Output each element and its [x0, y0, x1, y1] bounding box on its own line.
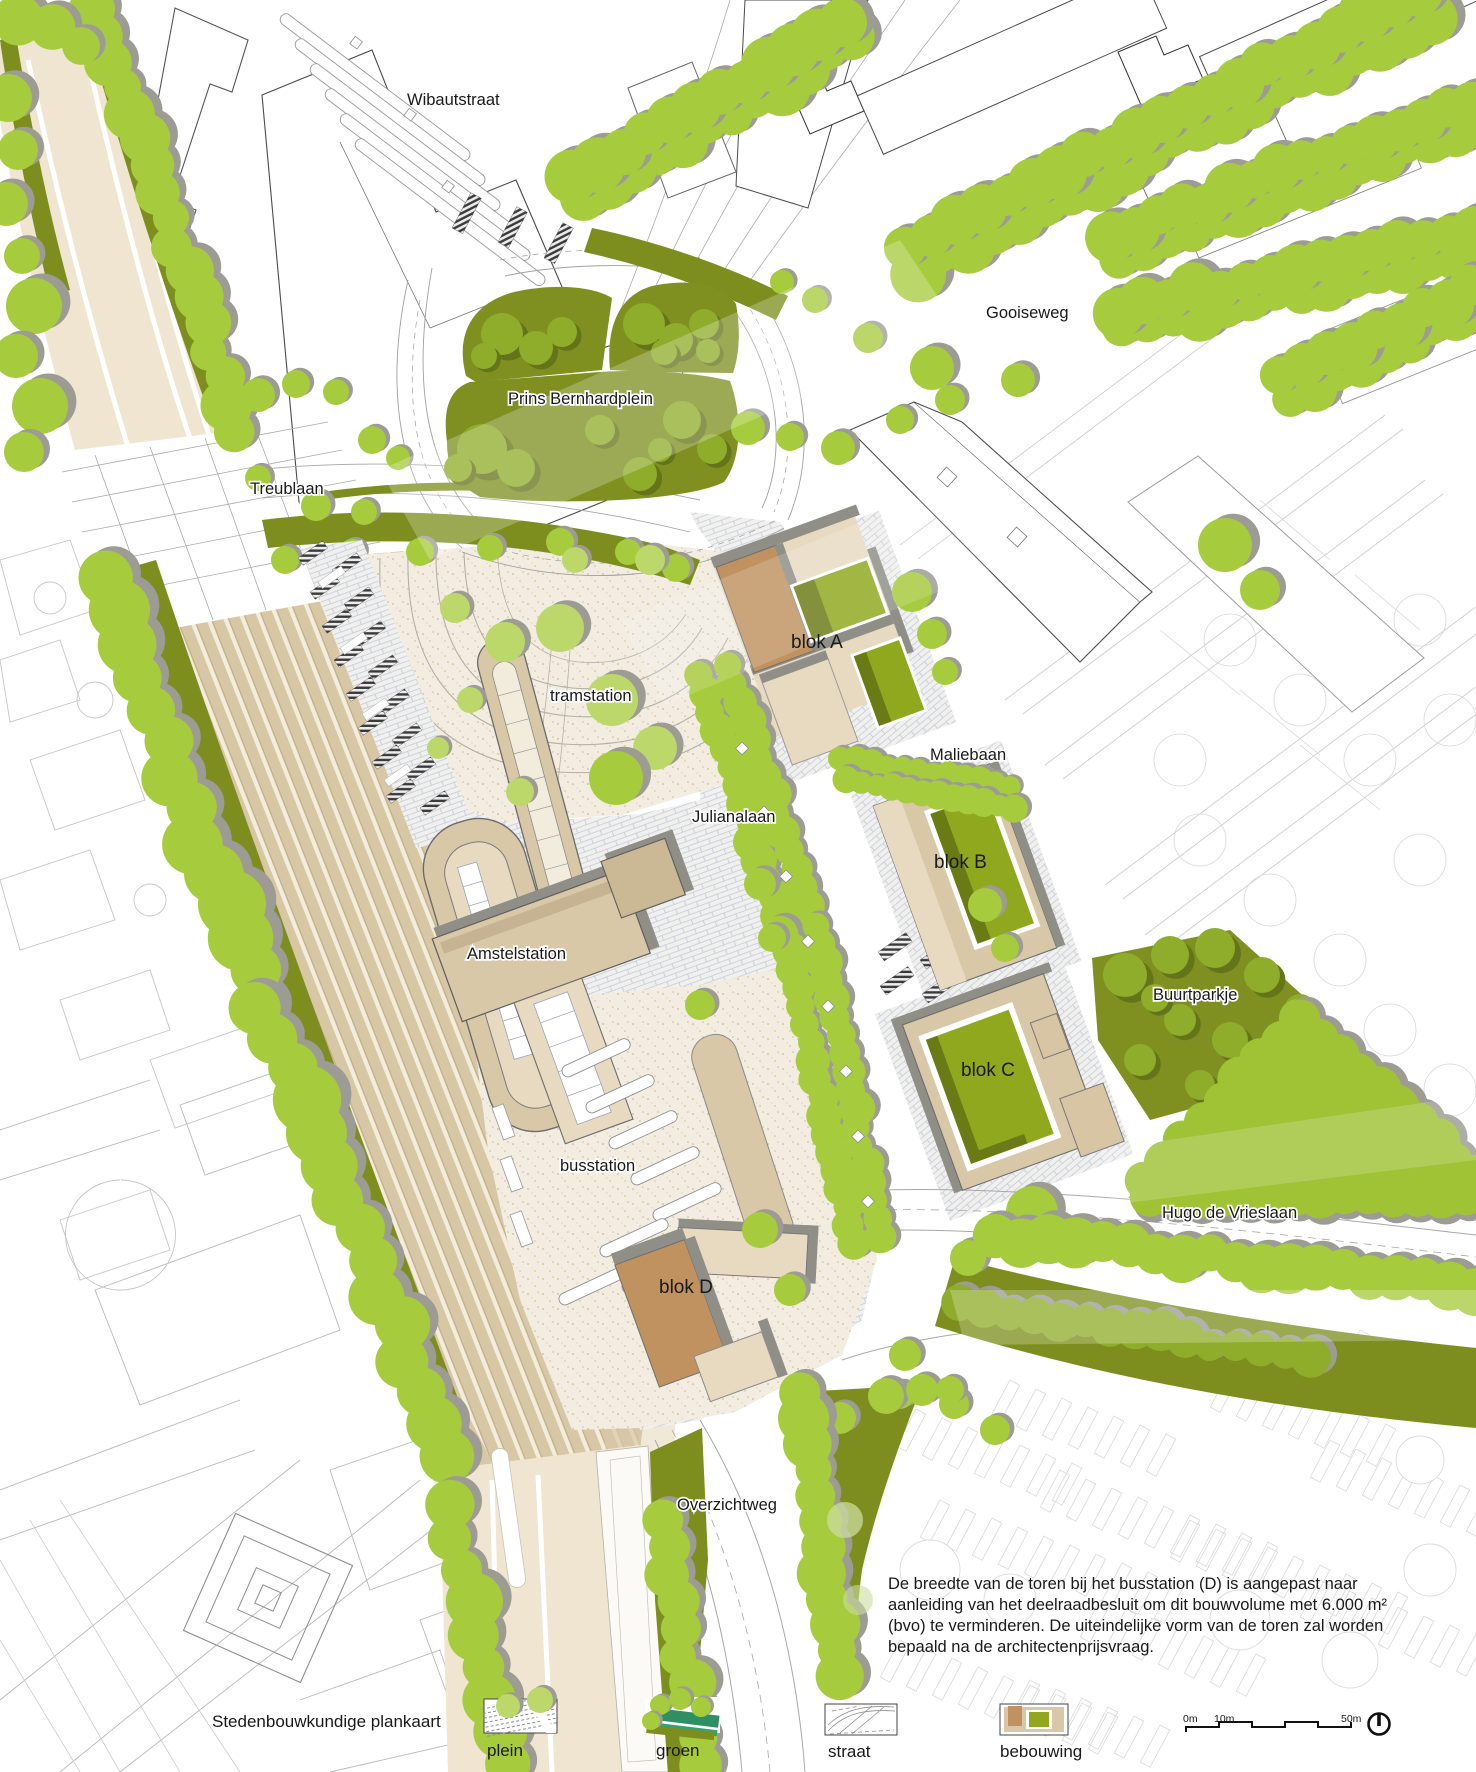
- svg-text:Overzichtweg: Overzichtweg: [677, 1496, 777, 1514]
- svg-text:bebouwing: bebouwing: [1000, 1742, 1082, 1761]
- svg-text:blok B: blok B: [934, 852, 987, 873]
- svg-text:tramstation: tramstation: [550, 687, 632, 705]
- svg-text:blok D: blok D: [659, 1277, 713, 1298]
- svg-text:blok A: blok A: [791, 632, 843, 653]
- svg-text:straat: straat: [828, 1742, 871, 1761]
- svg-text:aanleiding van het deelraadbes: aanleiding van het deelraadbesluit om di…: [888, 1596, 1387, 1614]
- svg-text:De breedte van de toren bij he: De breedte van de toren bij het busstati…: [888, 1575, 1358, 1593]
- svg-text:50m: 50m: [1341, 1713, 1362, 1725]
- svg-text:(bvo) te verminderen. De uitei: (bvo) te verminderen. De uiteindelijke v…: [888, 1617, 1383, 1635]
- svg-text:groen: groen: [656, 1741, 699, 1760]
- svg-text:Wibautstraat: Wibautstraat: [407, 91, 500, 109]
- svg-text:Gooiseweg: Gooiseweg: [986, 304, 1069, 322]
- svg-text:Treublaan: Treublaan: [250, 480, 324, 498]
- svg-text:Hugo de Vrieslaan: Hugo de Vrieslaan: [1162, 1204, 1297, 1222]
- svg-text:Stedenbouwkundige plankaart: Stedenbouwkundige plankaart: [212, 1712, 441, 1731]
- svg-text:0m: 0m: [1183, 1713, 1198, 1725]
- svg-text:10m: 10m: [1214, 1713, 1235, 1725]
- svg-text:Amstelstation: Amstelstation: [467, 945, 566, 963]
- svg-text:Julianalaan: Julianalaan: [692, 808, 775, 826]
- svg-text:Maliebaan: Maliebaan: [930, 746, 1006, 764]
- svg-text:busstation: busstation: [560, 1157, 635, 1175]
- svg-text:Prins Bernhardplein: Prins Bernhardplein: [508, 390, 653, 408]
- svg-text:bepaald na de architectenprij: bepaald na de architectenprijsvraag.: [888, 1638, 1154, 1656]
- svg-text:plein: plein: [487, 1741, 523, 1760]
- svg-text:blok C: blok C: [961, 1060, 1015, 1081]
- svg-text:Buurtparkje: Buurtparkje: [1153, 986, 1237, 1004]
